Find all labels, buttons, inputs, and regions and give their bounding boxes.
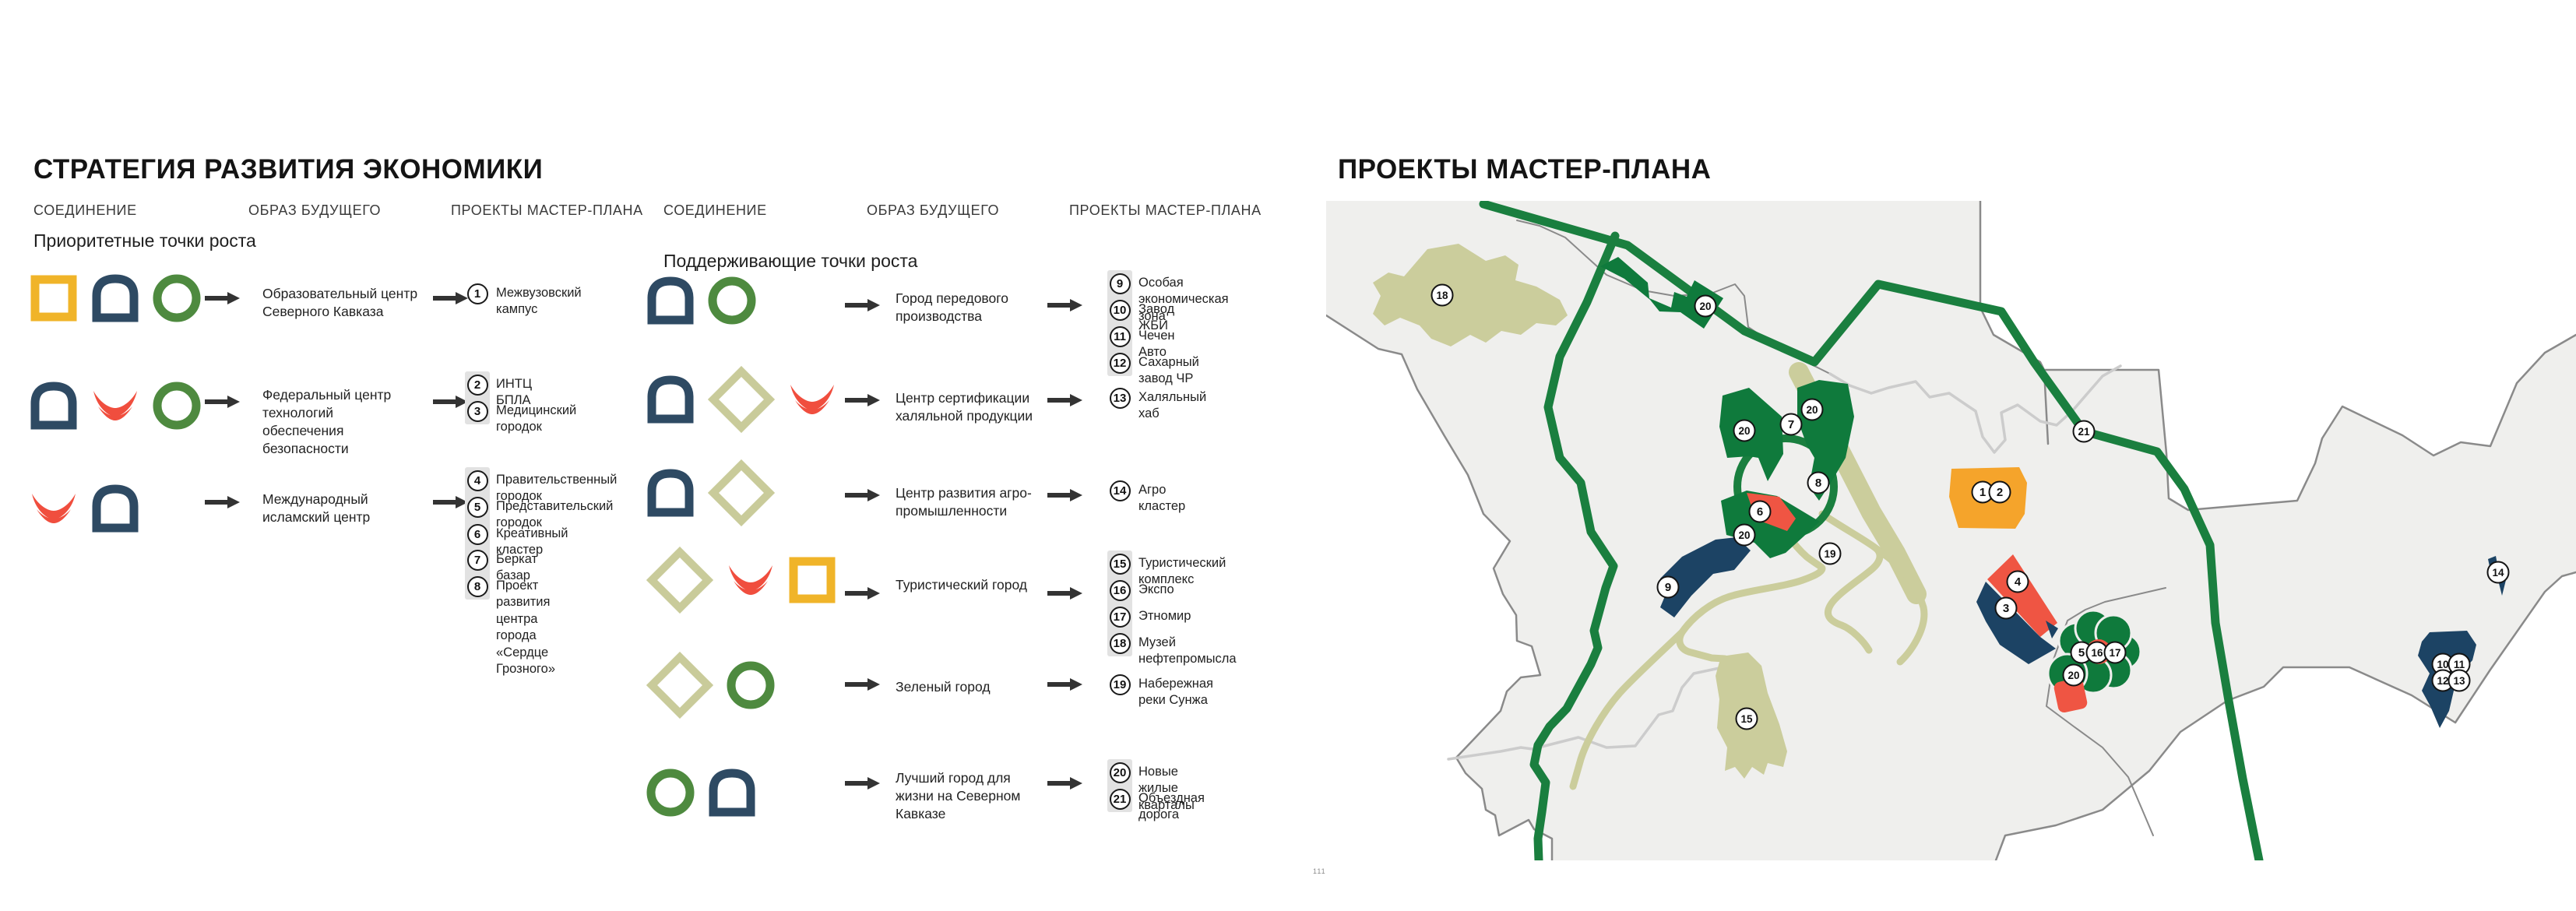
connection-icons: [30, 382, 201, 430]
future-image-label: Лучший город для жизни на Северном Кавка…: [896, 769, 1051, 823]
project-number-badge: 10: [1110, 300, 1131, 321]
project-number-badge: 17: [1110, 607, 1131, 628]
flow-arrow-icon: [1047, 487, 1083, 503]
project-label: Экспо: [1138, 582, 1174, 598]
diamond-olive-icon: [646, 652, 713, 719]
diamond-olive-icon: [708, 366, 775, 433]
future-image-label: Центр развития агро-промышленности: [896, 484, 1051, 520]
smile-red-icon: [91, 387, 139, 424]
arch-navy-icon: [30, 382, 78, 430]
map-marker-3: 3: [1996, 598, 2017, 619]
map-marker-6: 6: [1750, 501, 1771, 522]
svg-text:1: 1: [1980, 486, 1986, 499]
future-image-label: Зеленый город: [896, 678, 1051, 696]
svg-text:18: 18: [1436, 290, 1448, 301]
svg-text:3: 3: [2003, 602, 2009, 615]
project-number-badge: 6: [467, 524, 488, 545]
svg-text:20: 20: [1699, 301, 1711, 312]
column-header-connection-1: СОЕДИНЕНИЕ: [33, 202, 137, 219]
map-marker-4: 4: [2008, 572, 2029, 593]
project-number-badge: 18: [1110, 633, 1131, 654]
project-label: Агро кластер: [1138, 482, 1185, 515]
flow-arrow-icon: [845, 392, 881, 408]
map-marker-13: 13: [2449, 670, 2470, 691]
left-panel-title: СТРАТЕГИЯ РАЗВИТИЯ ЭКОНОМИКИ: [33, 154, 543, 185]
project-label: Межвузовский кампус: [496, 285, 582, 318]
project-number-badge: 2: [467, 375, 488, 396]
map-marker-17: 17: [2105, 642, 2126, 663]
arch-navy-icon: [91, 274, 139, 322]
svg-text:19: 19: [1824, 548, 1835, 560]
column-header-projects-2: ПРОЕКТЫ МАСТЕР-ПЛАНА: [1069, 202, 1262, 219]
group-subtitle-priority: Приоритетные точки роста: [33, 230, 256, 251]
future-image-label: Центр сертификации халяльной продукции: [896, 389, 1051, 425]
project-number-badge: 3: [467, 401, 488, 422]
flow-arrow-icon: [433, 494, 469, 510]
flow-arrow-icon: [1047, 677, 1083, 692]
svg-text:5: 5: [2078, 646, 2085, 660]
diamond-olive-icon: [708, 459, 775, 526]
svg-text:21: 21: [2078, 426, 2090, 438]
project-label: Объездная дорога: [1138, 790, 1205, 824]
right-panel-title: ПРОЕКТЫ МАСТЕР-ПЛАНА: [1338, 154, 1711, 185]
smile-red-icon: [727, 561, 775, 599]
master-plan-map: 1820212072086209191243516172015141011121…: [1326, 201, 2576, 860]
project-number-badge: 9: [1110, 273, 1131, 294]
flow-arrow-icon: [845, 487, 881, 503]
map-marker-20: 20: [1734, 420, 1755, 441]
square-yellow-icon: [30, 274, 78, 322]
project-number-badge: 20: [1110, 762, 1131, 783]
svg-text:4: 4: [2015, 575, 2022, 589]
project-label: Сахарный завод ЧР: [1138, 354, 1199, 388]
map-marker-8: 8: [1808, 473, 1829, 494]
project-number-badge: 8: [467, 576, 488, 597]
svg-text:17: 17: [2109, 647, 2120, 659]
project-number-badge: 15: [1110, 554, 1131, 575]
map-marker-15: 15: [1737, 709, 1758, 730]
svg-text:2: 2: [1997, 486, 2003, 499]
map-marker-21: 21: [2074, 421, 2095, 442]
flow-arrow-icon: [1047, 392, 1083, 408]
connection-icons: [646, 769, 756, 817]
svg-text:15: 15: [1740, 713, 1753, 725]
project-number-badge: 1: [467, 283, 488, 304]
svg-text:10: 10: [2437, 659, 2448, 670]
flow-arrow-icon: [1047, 297, 1083, 313]
svg-text:13: 13: [2453, 675, 2465, 687]
circle-green-icon: [153, 382, 201, 430]
svg-text:20: 20: [2067, 670, 2079, 681]
arch-navy-icon: [91, 484, 139, 533]
flow-arrow-icon: [1047, 776, 1083, 791]
project-label: Набережная реки Сунжа: [1138, 676, 1213, 709]
footnote: 111: [1313, 867, 1326, 875]
flow-arrow-icon: [845, 297, 881, 313]
project-number-badge: 19: [1110, 674, 1131, 695]
circle-green-icon: [153, 274, 201, 322]
connection-icons: [646, 276, 756, 325]
map-marker-20: 20: [1734, 525, 1755, 546]
connection-icons: [646, 459, 775, 526]
flow-arrow-icon: [1047, 586, 1083, 601]
column-header-future-2: ОБРАЗ БУДУЩЕГО: [867, 202, 999, 219]
svg-text:16: 16: [2091, 647, 2103, 659]
connection-icons: [646, 547, 836, 614]
map-marker-14: 14: [2488, 562, 2509, 583]
future-image-label: Город передового производства: [896, 290, 1051, 325]
project-number-badge: 14: [1110, 480, 1131, 501]
smile-red-icon: [788, 381, 836, 418]
connection-icons: [30, 484, 139, 533]
svg-text:8: 8: [1815, 477, 1821, 490]
future-image-label: Федеральный центр технологий обеспечения…: [262, 386, 418, 458]
arch-navy-icon: [646, 276, 695, 325]
svg-text:20: 20: [1738, 425, 1750, 437]
future-image-label: Туристический город: [896, 576, 1051, 594]
project-number-badge: 16: [1110, 580, 1131, 601]
map-marker-18: 18: [1432, 285, 1453, 306]
column-header-connection-2: СОЕДИНЕНИЕ: [663, 202, 767, 219]
project-label: Музей нефтепромысла: [1138, 635, 1237, 668]
map-marker-20: 20: [1695, 296, 1716, 317]
svg-text:6: 6: [1757, 505, 1763, 519]
circle-green-icon: [646, 769, 695, 817]
map-marker-2: 2: [1990, 482, 2011, 503]
column-header-projects-1: ПРОЕКТЫ МАСТЕР-ПЛАНА: [451, 202, 643, 219]
map-marker-20: 20: [2064, 665, 2085, 686]
column-header-future-1: ОБРАЗ БУДУЩЕГО: [248, 202, 381, 219]
square-yellow-icon: [788, 556, 836, 604]
flow-arrow-icon: [845, 586, 881, 601]
group-subtitle-supporting: Поддерживающие точки роста: [663, 251, 917, 272]
smile-red-icon: [30, 490, 78, 527]
flow-arrow-icon: [433, 290, 469, 306]
future-image-label: Международный исламский центр: [262, 491, 418, 526]
project-number-badge: 13: [1110, 388, 1131, 409]
svg-text:14: 14: [2492, 567, 2504, 579]
svg-text:9: 9: [1665, 581, 1671, 594]
map-marker-20: 20: [1802, 399, 1823, 420]
svg-text:12: 12: [2437, 675, 2448, 687]
connection-icons: [30, 274, 201, 322]
project-label: Этномир: [1138, 608, 1191, 624]
circle-green-icon: [727, 661, 775, 709]
svg-text:7: 7: [1788, 418, 1794, 431]
diamond-olive-icon: [646, 547, 713, 614]
svg-text:20: 20: [1806, 404, 1818, 416]
arch-navy-icon: [646, 375, 695, 424]
flow-arrow-icon: [433, 394, 469, 410]
flow-arrow-icon: [205, 290, 241, 306]
future-image-label: Образовательный центр Северного Кавказа: [262, 285, 418, 321]
map-marker-19: 19: [1820, 543, 1841, 565]
project-number-badge: 7: [467, 550, 488, 571]
connection-icons: [646, 366, 836, 433]
project-number-badge: 21: [1110, 789, 1131, 810]
project-label: Проект развития центра города «Сердце Гр…: [496, 578, 555, 678]
map-marker-7: 7: [1781, 414, 1802, 435]
map-marker-9: 9: [1658, 577, 1679, 598]
flow-arrow-icon: [205, 394, 241, 410]
svg-text:11: 11: [2454, 659, 2465, 670]
project-label: Халяльный хаб: [1138, 389, 1206, 423]
project-number-badge: 12: [1110, 353, 1131, 374]
flow-arrow-icon: [845, 677, 881, 692]
arch-navy-icon: [708, 769, 756, 817]
project-number-badge: 4: [467, 470, 488, 491]
connection-icons: [646, 652, 775, 719]
project-number-badge: 11: [1110, 326, 1131, 347]
arch-navy-icon: [646, 469, 695, 517]
flow-arrow-icon: [845, 776, 881, 791]
svg-text:20: 20: [1738, 529, 1750, 541]
project-label: Медицинский городок: [496, 403, 576, 436]
circle-green-icon: [708, 276, 756, 325]
project-number-badge: 5: [467, 497, 488, 518]
flow-arrow-icon: [205, 494, 241, 510]
